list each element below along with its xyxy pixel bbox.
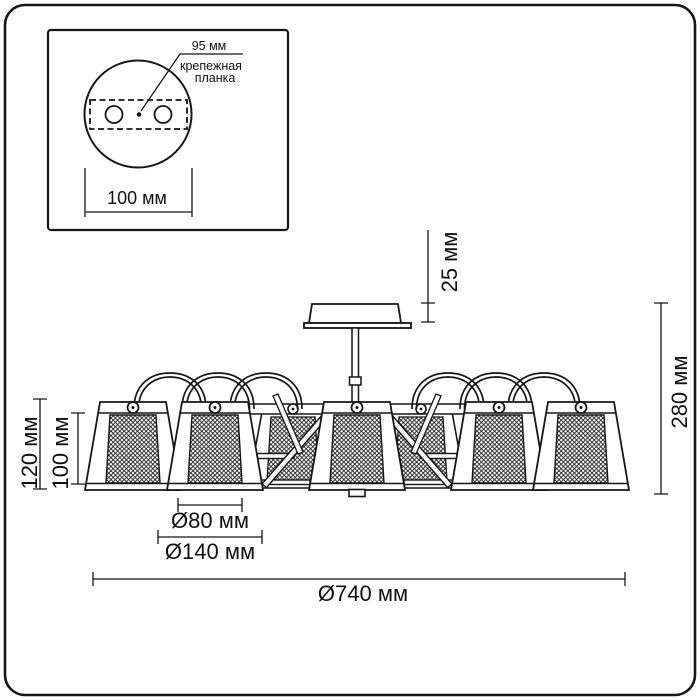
- dim-label-shade-inner-height: 100 мм: [48, 416, 73, 489]
- dim-line-canopy-height: [421, 230, 435, 322]
- dim-label-shade-bottom-diameter: Ø140 мм: [165, 539, 255, 564]
- lampshade-2: [167, 402, 263, 490]
- dim-label-fixture-diameter: Ø740 мм: [318, 581, 408, 606]
- mounting-hole-right: [155, 106, 172, 123]
- inset-frame: [48, 30, 288, 230]
- ceiling-canopy: [304, 304, 411, 328]
- dim-label-canopy-height: 25 мм: [437, 232, 462, 293]
- mounting-plate-inset: 95 мм крепежная планка 100 мм: [48, 30, 288, 230]
- dim-label-shade-top-diameter: Ø80 мм: [171, 508, 249, 533]
- dim-label-fixture-height: 280 мм: [667, 355, 692, 428]
- dimension-drawing-page: 25 мм 280 мм 120 мм 100 мм Ø80 мм Ø140 м…: [0, 0, 700, 700]
- lampshade-7: [533, 402, 629, 490]
- chandelier-side-view: [85, 304, 629, 497]
- stem: [350, 328, 362, 408]
- chandelier-technical-drawing: 25 мм 280 мм 120 мм 100 мм Ø80 мм Ø140 м…: [0, 0, 700, 700]
- lampshade-6: [451, 402, 547, 490]
- dim-label-shade-outer-height: 120 мм: [17, 416, 42, 489]
- plate-center-point: [137, 112, 142, 117]
- mounting-plate-label-line2: планка: [195, 71, 236, 85]
- hole-spacing-label: 95 мм: [192, 39, 227, 53]
- dim-line-fixture-height: [654, 303, 668, 494]
- dim-line-shade-inner-height: [71, 413, 85, 484]
- dim-label-plate-width: 100 мм: [107, 188, 167, 208]
- mounting-hole-left: [106, 106, 123, 123]
- lampshade-1: [85, 402, 181, 490]
- center-shade-foot: [349, 490, 365, 497]
- lampshade-center: [309, 402, 405, 490]
